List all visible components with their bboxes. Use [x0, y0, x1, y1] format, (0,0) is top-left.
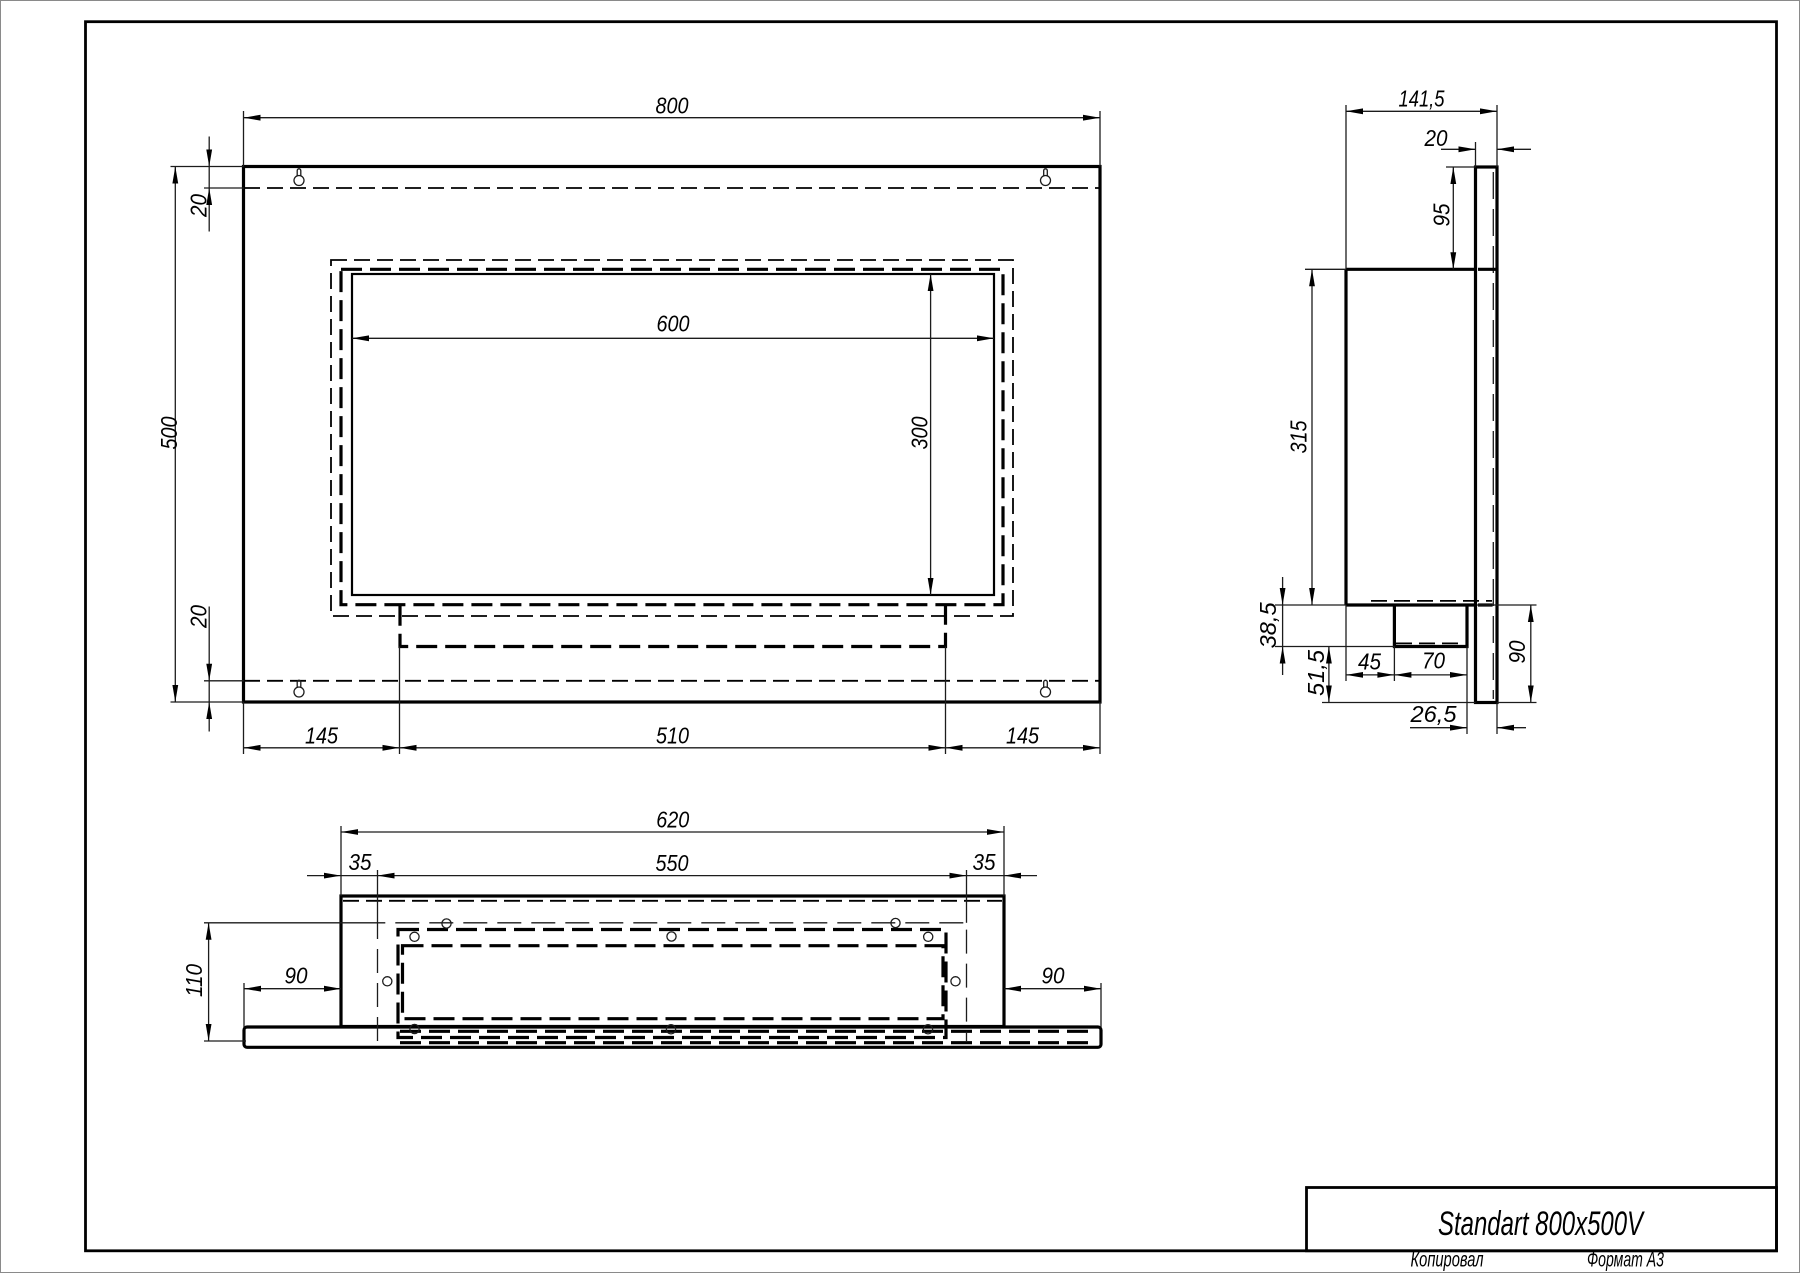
svg-text:35: 35 [349, 849, 373, 875]
svg-text:20: 20 [1424, 125, 1448, 151]
svg-text:90: 90 [285, 963, 308, 989]
svg-text:500: 500 [156, 417, 182, 450]
svg-text:Standart 800x500V: Standart 800x500V [1438, 1205, 1645, 1243]
svg-text:20: 20 [186, 194, 212, 218]
svg-text:145: 145 [305, 723, 339, 749]
svg-text:141,5: 141,5 [1399, 86, 1446, 112]
svg-text:Формат А3: Формат А3 [1587, 1249, 1664, 1272]
svg-text:90: 90 [1042, 963, 1065, 989]
svg-text:35: 35 [973, 849, 997, 875]
svg-text:38,5: 38,5 [1255, 601, 1281, 648]
svg-text:70: 70 [1422, 648, 1445, 674]
svg-text:45: 45 [1358, 649, 1382, 675]
svg-text:95: 95 [1429, 203, 1455, 227]
svg-text:51,5: 51,5 [1303, 649, 1329, 696]
svg-text:315: 315 [1286, 420, 1312, 454]
svg-text:20: 20 [186, 605, 212, 629]
svg-text:26,5: 26,5 [1409, 701, 1457, 727]
svg-text:90: 90 [1504, 641, 1530, 664]
svg-text:510: 510 [656, 723, 689, 749]
svg-text:550: 550 [656, 850, 689, 876]
svg-text:Копировал: Копировал [1411, 1249, 1484, 1272]
svg-text:600: 600 [657, 311, 690, 337]
svg-text:800: 800 [656, 93, 689, 119]
svg-text:110: 110 [181, 964, 207, 997]
svg-text:300: 300 [907, 417, 933, 450]
svg-text:145: 145 [1006, 723, 1040, 749]
svg-text:620: 620 [656, 807, 689, 833]
